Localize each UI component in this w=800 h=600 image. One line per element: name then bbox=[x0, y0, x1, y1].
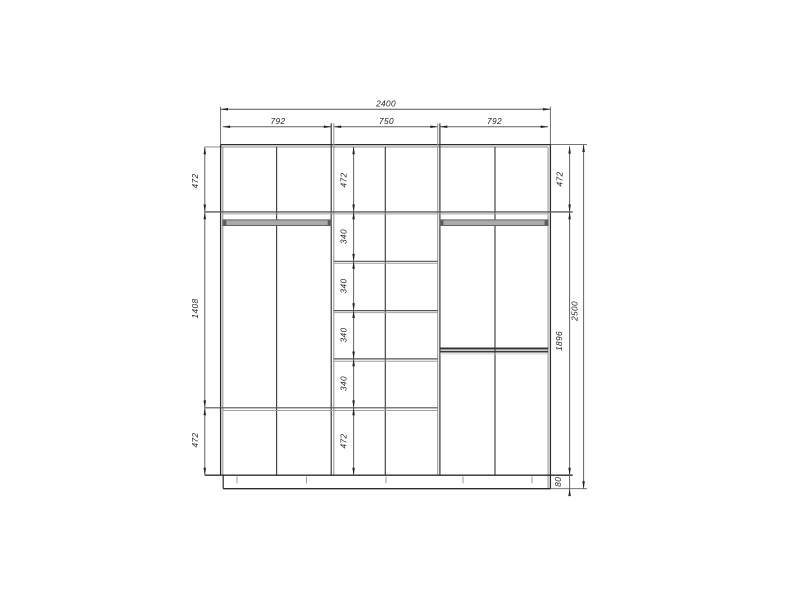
svg-text:472: 472 bbox=[190, 433, 200, 448]
svg-text:1408: 1408 bbox=[190, 299, 200, 319]
svg-text:340: 340 bbox=[339, 376, 349, 391]
svg-text:750: 750 bbox=[379, 116, 394, 126]
svg-text:340: 340 bbox=[339, 328, 349, 343]
svg-text:472: 472 bbox=[555, 172, 565, 187]
svg-text:792: 792 bbox=[487, 116, 502, 126]
svg-text:792: 792 bbox=[271, 116, 286, 126]
svg-text:80: 80 bbox=[553, 477, 563, 487]
svg-text:472: 472 bbox=[339, 173, 349, 188]
svg-text:1896: 1896 bbox=[554, 331, 564, 351]
svg-text:472: 472 bbox=[190, 174, 200, 189]
svg-text:340: 340 bbox=[339, 229, 349, 244]
svg-text:340: 340 bbox=[339, 279, 349, 294]
svg-text:472: 472 bbox=[339, 434, 349, 449]
svg-text:2400: 2400 bbox=[375, 99, 396, 109]
svg-text:2500: 2500 bbox=[569, 301, 579, 322]
